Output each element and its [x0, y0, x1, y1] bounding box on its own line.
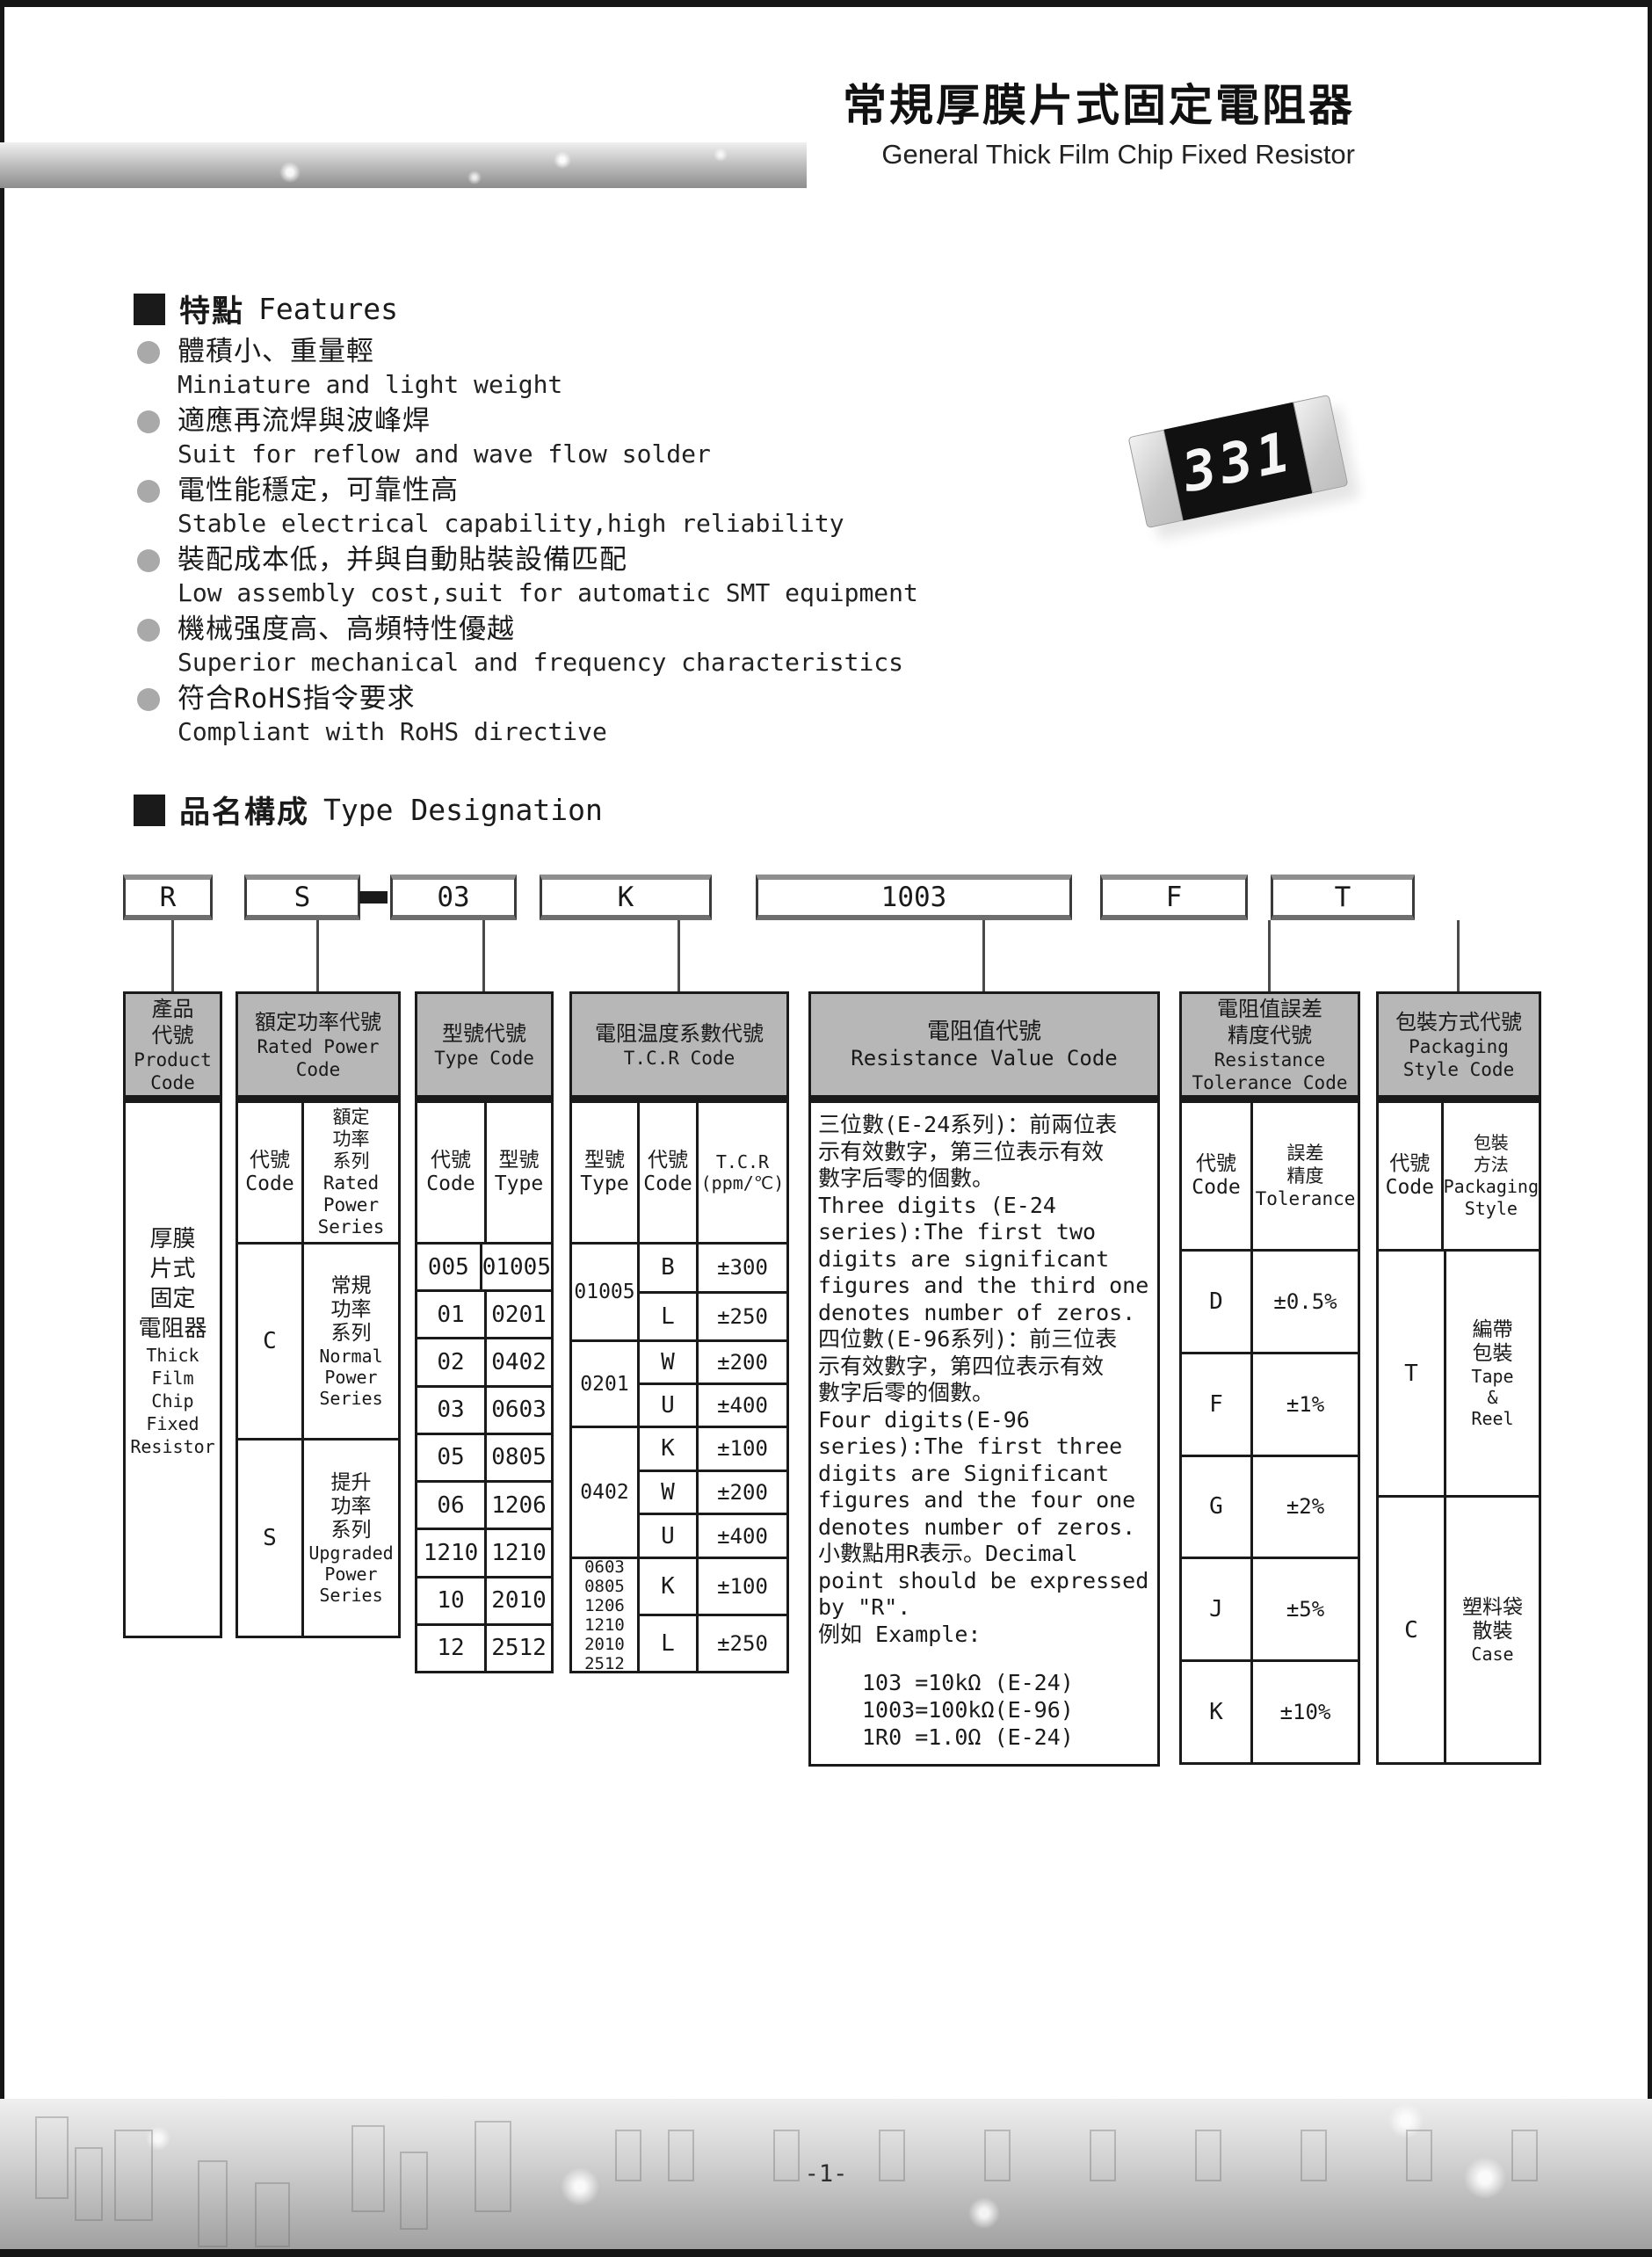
tolerance-row: F±1%: [1182, 1352, 1358, 1455]
type-size: 1206: [487, 1483, 551, 1528]
page-right-border: [1648, 0, 1652, 2257]
feature-zh: 機械强度高、高頻特性優越: [178, 612, 515, 647]
chip-resistor-image: 331: [1128, 395, 1349, 528]
features-heading-zh: 特點: [179, 287, 244, 331]
tcr-group-label: 0603 0805 1206 1210 2010 2512: [572, 1559, 640, 1671]
bullet-icon: [137, 688, 160, 711]
header-zh: 電阻值代號: [927, 1019, 1041, 1045]
type-size: 0603: [487, 1388, 551, 1433]
page-title-block: 常規厚膜片式固定電阻器 General Thick Film Chip Fixe…: [756, 81, 1355, 171]
connector-line: [1268, 920, 1271, 991]
tcr-value: ±100: [699, 1559, 786, 1614]
column-header-packaging: 包裝方式代號 Packaging Style Code: [1376, 991, 1541, 1100]
tolerance-value: ±5%: [1253, 1559, 1358, 1659]
code-dash: [359, 891, 388, 904]
tolerance-value: ±2%: [1253, 1457, 1358, 1557]
subheader-type: 型號 Type: [572, 1103, 640, 1242]
subheader-tcr: T.C.R (ppm/℃): [699, 1103, 786, 1242]
column-header-tcr: 電阻温度系數代號 T.C.R Code: [569, 991, 789, 1100]
header-zh: 包裝方式代號: [1395, 1009, 1522, 1035]
tolerance-row: J±5%: [1182, 1557, 1358, 1659]
tcr-code: K: [640, 1428, 699, 1470]
type-code: 03: [417, 1388, 487, 1433]
type-row: 12101210: [417, 1528, 551, 1575]
type-subheader-row: 代號 Code 型號 Type: [417, 1103, 551, 1242]
packaging-row-C: C 塑料袋 散裝 Case: [1379, 1495, 1539, 1762]
feature-en: Superior mechanical and frequency charac…: [178, 647, 1116, 679]
power-subheader-row: 代號 Code 額定 功率 系列 Rated Power Series: [238, 1103, 398, 1242]
subheader-desc: 誤差 精度 Tolerance: [1253, 1103, 1358, 1249]
column-header-tolerance: 電阻值誤差 精度代號 Resistance Tolerance Code: [1179, 991, 1360, 1100]
header-en: Resistance Value Code: [851, 1045, 1117, 1071]
type-code: 12: [417, 1626, 487, 1671]
header-zh: 額定功率代號: [255, 1009, 381, 1035]
power-row-C: C 常規 功率 系列 Normal Power Series: [238, 1242, 398, 1438]
product-body-en: Thick Film Chip Fixed Resistor: [126, 1344, 220, 1458]
tcr-value: ±200: [699, 1342, 786, 1383]
tcr-code: K: [640, 1559, 699, 1614]
feature-item: 機械强度高、高頻特性優越 Superior mechanical and fre…: [132, 612, 1116, 679]
tcr-group-label: 0402: [572, 1428, 640, 1557]
packaging-code: T: [1379, 1252, 1446, 1495]
tcr-value: ±400: [699, 1385, 786, 1426]
tcr-code: U: [640, 1385, 699, 1426]
type-code: 1210: [417, 1530, 487, 1575]
designation-heading-zh: 品名構成: [179, 787, 309, 832]
column-header-type: 型號代號 Type Code: [415, 991, 554, 1100]
type-row: 020402: [417, 1337, 551, 1384]
type-code: 02: [417, 1339, 487, 1384]
feature-item: 適應再流焊與波峰焊 Suit for reflow and wave flow …: [132, 403, 1116, 470]
tcr-value: ±250: [699, 1294, 786, 1340]
tcr-group-0402: 0402 K±100 W±200 U±400: [572, 1426, 786, 1557]
tolerance-code: K: [1182, 1662, 1253, 1762]
tcr-code: U: [640, 1515, 699, 1557]
type-row: 061206: [417, 1480, 551, 1528]
subheader-code: 代號 Code: [238, 1103, 304, 1242]
page-top-border: [0, 0, 1652, 7]
tolerance-value: ±1%: [1253, 1354, 1358, 1455]
connector-line: [171, 920, 174, 991]
type-size: 1210: [487, 1530, 551, 1575]
tolerance-code: J: [1182, 1559, 1253, 1659]
header-zh: 電阻值誤差 精度代號: [1217, 996, 1322, 1049]
type-code: 06: [417, 1483, 487, 1528]
product-code-column: 厚膜 片式 固定 電阻器 Thick Film Chip Fixed Resis…: [123, 1100, 222, 1638]
tolerance-row: G±2%: [1182, 1455, 1358, 1557]
power-code: C: [238, 1245, 304, 1438]
header-en: Packaging Style Code: [1403, 1035, 1514, 1081]
type-designation-heading: 品名構成 Type Designation: [134, 787, 603, 832]
feature-zh: 符合RoHS指令要求: [178, 681, 416, 716]
tcr-code: L: [640, 1616, 699, 1671]
type-row: 102010: [417, 1576, 551, 1623]
tcr-value: ±200: [699, 1472, 786, 1513]
type-size: 2512: [487, 1626, 551, 1671]
type-size: 2010: [487, 1578, 551, 1623]
packaging-desc-en: Tape & Reel: [1471, 1366, 1513, 1429]
bullet-icon: [137, 410, 160, 433]
features-list: 體積小、重量輕 Miniature and light weight 適應再流焊…: [132, 334, 1116, 751]
type-size: 01005: [482, 1245, 551, 1289]
tcr-value: ±250: [699, 1616, 786, 1671]
header-en: Resistance Tolerance Code: [1192, 1049, 1347, 1094]
tolerance-code: G: [1182, 1457, 1253, 1557]
tolerance-row: K±10%: [1182, 1659, 1358, 1762]
power-desc-zh: 常規 功率 系列: [331, 1274, 372, 1346]
page-subtitle: General Thick Film Chip Fixed Resistor: [756, 139, 1355, 171]
code-box-type: 03: [390, 874, 517, 920]
code-box-product: R: [123, 874, 213, 920]
tcr-value: ±300: [699, 1245, 786, 1291]
page-bottom-border: [0, 2249, 1652, 2257]
tolerance-subheader-row: 代號 Code 誤差 精度 Tolerance: [1182, 1103, 1358, 1249]
tcr-code: L: [640, 1294, 699, 1340]
type-size: 0402: [487, 1339, 551, 1384]
designation-heading-en: Type Designation: [323, 793, 603, 827]
packaging-subheader-row: 代號 Code 包裝 方法 Packaging Style: [1379, 1103, 1539, 1249]
features-heading: 特點 Features: [134, 287, 398, 331]
power-desc-zh: 提升 功率 系列: [331, 1471, 372, 1542]
tcr-code: W: [640, 1342, 699, 1383]
feature-item: 符合RoHS指令要求 Compliant with RoHS directive: [132, 681, 1116, 748]
tcr-value: ±100: [699, 1428, 786, 1470]
bullet-icon: [137, 619, 160, 642]
features-heading-en: Features: [258, 292, 398, 326]
header-en: Product Code: [134, 1049, 212, 1094]
subheader-code: 代號 Code: [640, 1103, 699, 1242]
tcr-group-0201: 0201 W±200 U±400: [572, 1339, 786, 1426]
header-en: T.C.R Code: [624, 1047, 735, 1070]
tcr-group-01005: 01005 B±300 L±250: [572, 1242, 786, 1339]
type-row: 030603: [417, 1385, 551, 1433]
packaging-code: C: [1379, 1498, 1446, 1762]
type-code: 05: [417, 1435, 487, 1480]
bullet-icon: [137, 549, 160, 572]
power-desc-en: Normal Power Series: [319, 1346, 382, 1409]
column-header-power: 額定功率代號 Rated Power Code: [235, 991, 401, 1100]
tcr-group-label: 01005: [572, 1245, 640, 1339]
resistance-value-examples: 103 =10kΩ (E-24) 1003=100kΩ(E-96) 1R0 =1…: [862, 1669, 1157, 1751]
tcr-value: ±400: [699, 1515, 786, 1557]
tcr-code: B: [640, 1245, 699, 1291]
tolerance-code: D: [1182, 1252, 1253, 1352]
datasheet-page: 常規厚膜片式固定電阻器 General Thick Film Chip Fixe…: [0, 0, 1652, 2257]
power-code: S: [238, 1441, 304, 1636]
code-box-value: 1003: [756, 874, 1072, 920]
type-row: 010201: [417, 1289, 551, 1337]
header-gradient-band: [0, 142, 807, 188]
page-title: 常規厚膜片式固定電阻器: [756, 81, 1355, 130]
power-row-S: S 提升 功率 系列 Upgraded Power Series: [238, 1438, 398, 1636]
subheader-code: 代號 Code: [1379, 1103, 1444, 1249]
tolerance-column: 代號 Code 誤差 精度 Tolerance D±0.5% F±1% G±2%…: [1179, 1100, 1360, 1765]
type-code-column: 代號 Code 型號 Type 00501005 010201 020402 0…: [415, 1100, 554, 1673]
column-header-product: 產品 代號 Product Code: [123, 991, 222, 1100]
header-en: Type Code: [434, 1047, 534, 1070]
subheader-desc: 包裝 方法 Packaging Style: [1444, 1103, 1539, 1249]
type-row: 00501005: [417, 1242, 551, 1289]
code-box-packaging: T: [1271, 874, 1415, 920]
tolerance-row: D±0.5%: [1182, 1249, 1358, 1352]
header-zh: 電阻温度系數代號: [595, 1020, 764, 1047]
resistance-value-text: 三位數(E-24系列)：前兩位表 示有效數字，第三位表示有效 數字后零的個數。 …: [811, 1103, 1157, 1657]
connector-line: [982, 920, 985, 991]
tcr-subheader-row: 型號 Type 代號 Code T.C.R (ppm/℃): [572, 1103, 786, 1242]
subheader-code: 代號 Code: [417, 1103, 487, 1242]
tcr-group-label: 0201: [572, 1342, 640, 1426]
feature-en: Compliant with RoHS directive: [178, 716, 1116, 748]
section-square-icon: [134, 294, 165, 325]
feature-en: Low assembly cost,suit for automatic SMT…: [178, 577, 1116, 609]
header-zh: 型號代號: [442, 1020, 526, 1047]
footer-gradient-band: -1-: [0, 2099, 1652, 2249]
feature-item: 電性能穩定，可靠性高 Stable electrical capability,…: [132, 473, 1116, 540]
type-code: 10: [417, 1578, 487, 1623]
section-square-icon: [134, 795, 165, 826]
bullet-icon: [137, 480, 160, 503]
page-number: -1-: [0, 2160, 1652, 2188]
subheader-type: 型號 Type: [487, 1103, 551, 1242]
chip-marking: 331: [1164, 403, 1313, 521]
tcr-code: W: [640, 1472, 699, 1513]
bullet-icon: [137, 341, 160, 364]
tcr-column: 型號 Type 代號 Code T.C.R (ppm/℃) 01005 B±30…: [569, 1100, 789, 1673]
feature-zh: 適應再流焊與波峰焊: [178, 403, 431, 439]
subheader-desc: 額定 功率 系列 Rated Power Series: [304, 1103, 398, 1242]
feature-en: Miniature and light weight: [178, 369, 1116, 401]
connector-line: [1457, 920, 1460, 991]
tcr-group-large-sizes: 0603 0805 1206 1210 2010 2512 K±100 L±25…: [572, 1557, 786, 1671]
packaging-desc-zh: 塑料袋 散裝: [1462, 1596, 1523, 1644]
packaging-desc-en: Case: [1471, 1644, 1513, 1665]
feature-item: 體積小、重量輕 Miniature and light weight: [132, 334, 1116, 401]
subheader-code: 代號 Code: [1182, 1103, 1253, 1249]
header-en: Rated Power Code: [257, 1035, 379, 1081]
type-row: 122512: [417, 1623, 551, 1671]
product-body-zh: 厚膜 片式 固定 電阻器: [126, 1224, 220, 1344]
rated-power-column: 代號 Code 額定 功率 系列 Rated Power Series C 常規…: [235, 1100, 401, 1638]
connector-line: [316, 920, 319, 991]
packaging-row-T: T 編帶 包裝 Tape & Reel: [1379, 1249, 1539, 1495]
type-size: 0201: [487, 1292, 551, 1337]
type-row: 050805: [417, 1433, 551, 1480]
page-left-border: [0, 0, 4, 2257]
header-zh: 產品 代號: [152, 996, 194, 1049]
tolerance-value: ±10%: [1253, 1662, 1358, 1762]
connector-line: [677, 920, 680, 991]
feature-zh: 電性能穩定，可靠性高: [178, 473, 459, 508]
packaging-desc-zh: 編帶 包裝: [1473, 1318, 1513, 1366]
code-box-power: S: [244, 874, 360, 920]
type-code: 005: [417, 1245, 482, 1289]
feature-en: Suit for reflow and wave flow solder: [178, 439, 1116, 470]
tolerance-code: F: [1182, 1354, 1253, 1455]
code-box-tolerance: F: [1100, 874, 1248, 920]
packaging-column: 代號 Code 包裝 方法 Packaging Style T 編帶 包裝 Ta…: [1376, 1100, 1541, 1765]
resistance-value-column: 三位數(E-24系列)：前兩位表 示有效數字，第三位表示有效 數字后零的個數。 …: [808, 1100, 1160, 1767]
type-size: 0805: [487, 1435, 551, 1480]
code-box-tcr: K: [540, 874, 712, 920]
column-header-value: 電阻值代號 Resistance Value Code: [808, 991, 1160, 1100]
connector-line: [482, 920, 485, 991]
feature-item: 裝配成本低，并與自動貼裝設備匹配 Low assembly cost,suit …: [132, 542, 1116, 609]
feature-zh: 裝配成本低，并與自動貼裝設備匹配: [178, 542, 627, 577]
type-code: 01: [417, 1292, 487, 1337]
feature-zh: 體積小、重量輕: [178, 334, 374, 369]
tolerance-value: ±0.5%: [1253, 1252, 1358, 1352]
feature-en: Stable electrical capability,high reliab…: [178, 508, 1116, 540]
power-desc-en: Upgraded Power Series: [308, 1542, 393, 1606]
